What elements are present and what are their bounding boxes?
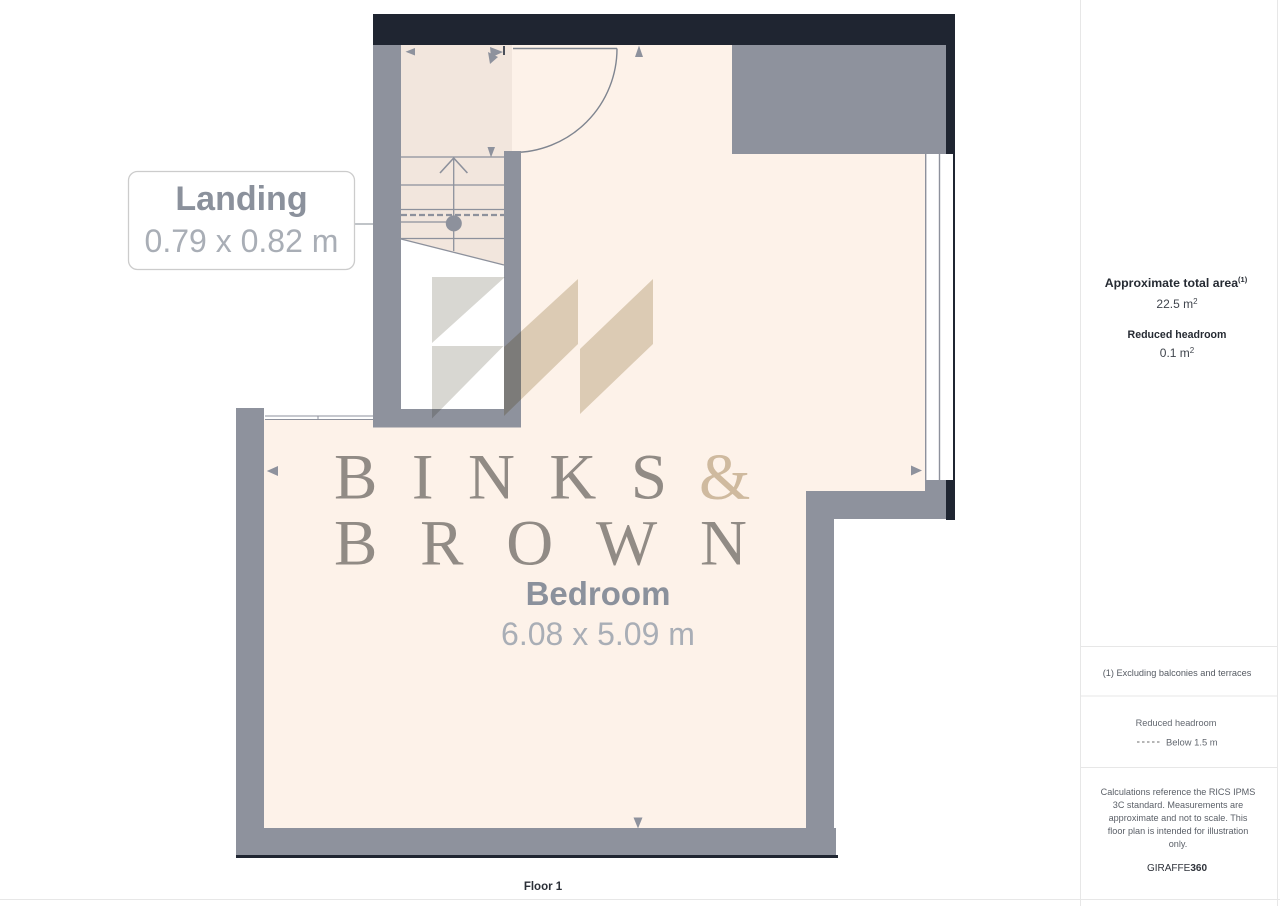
svg-text:3C standard. Measurements are: 3C standard. Measurements are xyxy=(1113,800,1243,810)
svg-text:(1) Excluding balconies and te: (1) Excluding balconies and terraces xyxy=(1103,668,1252,678)
svg-text:Reduced headroom: Reduced headroom xyxy=(1136,718,1217,728)
svg-text:floor plan is intended for ill: floor plan is intended for illustration xyxy=(1108,826,1249,836)
svg-text:Reduced headroom: Reduced headroom xyxy=(1128,329,1227,341)
svg-text:22.5 m2: 22.5 m2 xyxy=(1156,297,1198,311)
svg-text:Below 1.5 m: Below 1.5 m xyxy=(1166,737,1218,748)
svg-text:Approximate total area(1): Approximate total area(1) xyxy=(1105,275,1248,290)
svg-text:approximate and not to scale.: approximate and not to scale. This xyxy=(1109,813,1248,823)
svg-text:Floor 1: Floor 1 xyxy=(524,881,563,893)
svg-text:0.1 m2: 0.1 m2 xyxy=(1160,346,1195,360)
svg-text:0.79 x 0.82 m: 0.79 x 0.82 m xyxy=(145,223,339,259)
svg-text:Bedroom: Bedroom xyxy=(526,575,671,612)
svg-text:Landing: Landing xyxy=(175,180,307,218)
svg-text:only.: only. xyxy=(1169,839,1188,849)
svg-text:6.08 x 5.09 m: 6.08 x 5.09 m xyxy=(501,616,695,652)
svg-text:&: & xyxy=(699,441,750,514)
svg-text:Calculations reference the RIC: Calculations reference the RICS IPMS xyxy=(1101,787,1256,797)
svg-text:GIRAFFE360: GIRAFFE360 xyxy=(1147,863,1207,874)
